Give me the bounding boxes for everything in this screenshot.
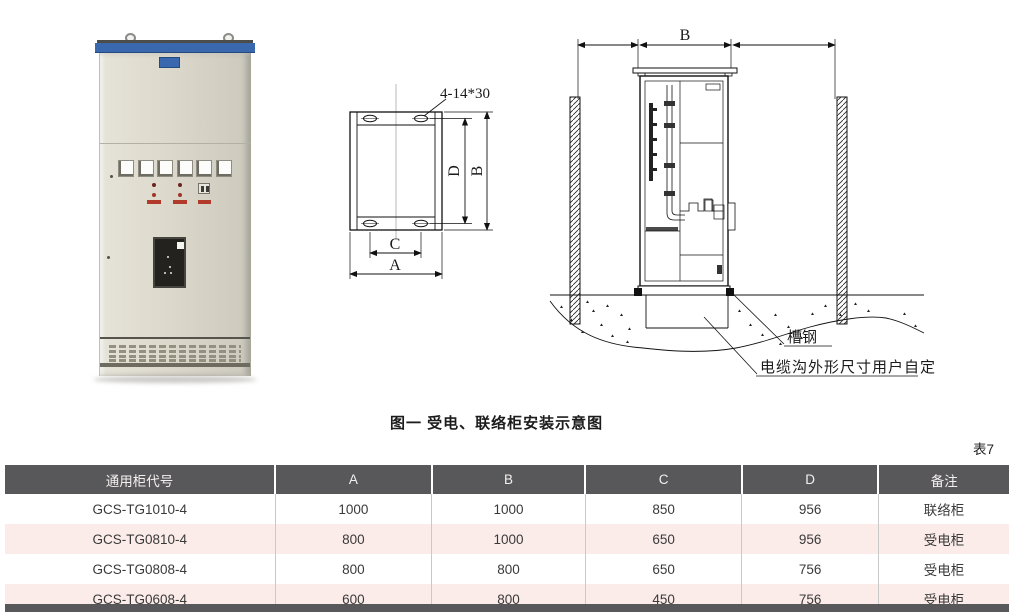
mounting-plan-drawing: 4-14*30 D B C A [335, 78, 515, 293]
cable-trench [646, 295, 728, 328]
control-switch [198, 183, 210, 194]
col-header-b: B [432, 465, 586, 494]
col-header-d: D [742, 465, 879, 494]
cell-a: 800 [275, 524, 432, 554]
door-seam [100, 143, 250, 144]
meter-window [138, 160, 154, 177]
soil-speckles [560, 300, 917, 345]
cell-model: GCS-TG0808-4 [5, 554, 275, 584]
table-row: GCS-TG1010-4 1000 1000 850 956 联络柜 [5, 494, 1009, 524]
cell-note: 联络柜 [878, 494, 1009, 524]
screw [110, 175, 113, 178]
spec-table: 通用柜代号 A B C D 备注 GCS-TG1010-4 1000 1000 … [5, 465, 1009, 612]
brand-label [159, 57, 180, 68]
indicator-light [178, 183, 182, 187]
dim-d-label: D [446, 165, 463, 177]
col-header-c: C [585, 465, 742, 494]
cell-b: 1000 [432, 524, 586, 554]
cabinet-body [99, 53, 251, 376]
cabinet-photo [95, 26, 255, 380]
photo-shadow [93, 376, 257, 383]
slotted-holes [361, 115, 430, 226]
cell-d: 956 [742, 494, 879, 524]
cell-c: 850 [585, 494, 742, 524]
indicator-label [147, 200, 161, 204]
excavation-outline [550, 301, 924, 351]
indicator-label [198, 200, 211, 204]
col-header-model: 通用柜代号 [5, 465, 275, 494]
panel-display [177, 242, 184, 249]
cabinet-section [633, 68, 737, 296]
cell-model: GCS-TG1010-4 [5, 494, 275, 524]
cell-c: 650 [585, 524, 742, 554]
cell-c: 650 [585, 554, 742, 584]
louver-divider [100, 337, 250, 339]
cabinet-blue-band [95, 43, 255, 53]
meter-window [216, 160, 232, 177]
col-header-note: 备注 [878, 465, 1009, 494]
cell-note: 受电柜 [878, 524, 1009, 554]
col-header-a: A [275, 465, 432, 494]
table-row: GCS-TG0808-4 800 800 650 756 受电柜 [5, 554, 1009, 584]
dim-b-label: B [680, 27, 691, 44]
figure-caption: 图一 受电、联络柜安装示意图 [390, 412, 603, 433]
indicator-light [152, 193, 156, 197]
plinth-band [100, 363, 250, 367]
table-number-label: 表7 [973, 438, 994, 458]
cell-b: 1000 [432, 494, 586, 524]
cell-a: 800 [275, 554, 432, 584]
table-header-row: 通用柜代号 A B C D 备注 [5, 465, 1009, 494]
ventilation-louver [109, 355, 241, 358]
meter-window [157, 160, 173, 177]
cell-d: 956 [742, 524, 879, 554]
indicator-light [178, 193, 182, 197]
installation-diagram: B 槽钢 电缆沟外形尺寸用户自定 [548, 15, 936, 397]
cell-a: 1000 [275, 494, 432, 524]
hole-spec-label: 4-14*30 [440, 86, 490, 102]
dim-a-label: A [389, 257, 401, 274]
ventilation-louver [109, 359, 241, 362]
meter-window [196, 160, 212, 177]
dim-c-label: C [390, 236, 401, 253]
cell-d: 756 [742, 554, 879, 584]
dim-b-label: B [469, 166, 486, 177]
cable-trench-label: 电缆沟外形尺寸用户自定 [760, 359, 936, 376]
cell-model: GCS-TG0810-4 [5, 524, 275, 554]
channel-steel-label: 槽钢 [787, 329, 817, 346]
meter-window [118, 160, 134, 177]
table-bottom-strip [5, 604, 1009, 612]
control-panel [153, 237, 186, 288]
busbar [649, 103, 653, 181]
right-wall [837, 97, 847, 324]
ventilation-louver [109, 350, 241, 353]
table-row: GCS-TG0810-4 800 1000 650 956 受电柜 [5, 524, 1009, 554]
indicator-light [152, 183, 156, 187]
cell-note: 受电柜 [878, 554, 1009, 584]
channel-steel-base [638, 286, 730, 295]
catalog-page: 4-14*30 D B C A [0, 0, 1013, 612]
indicator-label [173, 200, 187, 204]
cell-b: 800 [432, 554, 586, 584]
screw [107, 256, 110, 259]
left-wall [570, 97, 580, 324]
ventilation-louver [109, 345, 241, 348]
meter-window [177, 160, 193, 177]
